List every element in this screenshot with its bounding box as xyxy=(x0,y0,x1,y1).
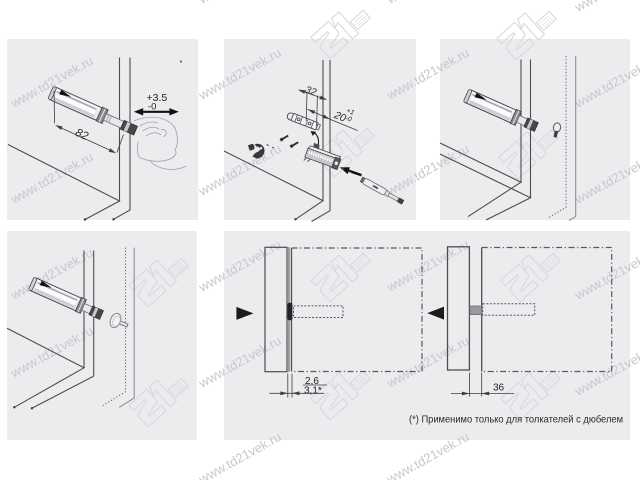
svg-text:36: 36 xyxy=(493,383,505,394)
svg-text:(*) Применимо только для толка: (*) Применимо только для толкателей с дю… xyxy=(409,413,623,425)
svg-text:3,1*: 3,1* xyxy=(304,386,322,397)
